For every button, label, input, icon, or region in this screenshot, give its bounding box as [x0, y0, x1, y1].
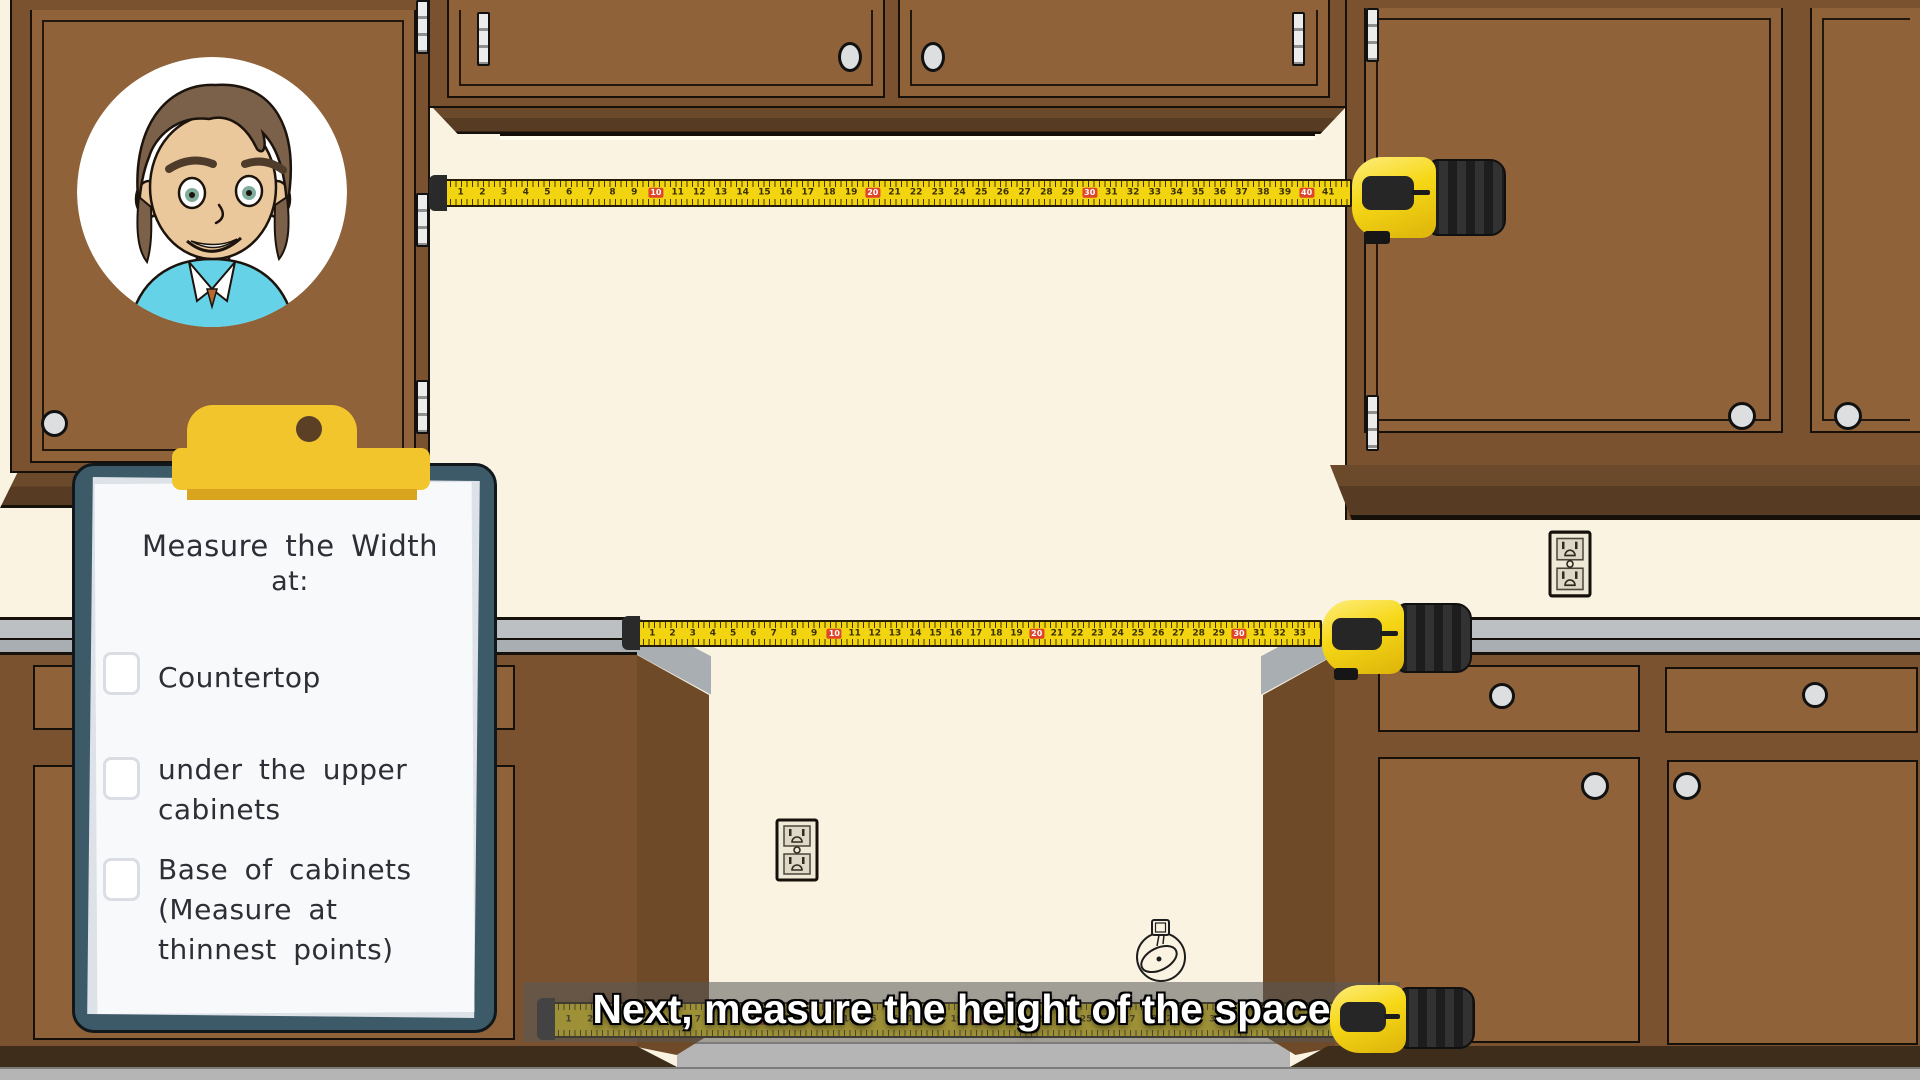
- tape-number: 32: [1273, 629, 1286, 638]
- tape-number: 35: [1192, 188, 1205, 197]
- tape-number: 14: [909, 629, 922, 638]
- tape-number: 22: [1071, 629, 1084, 638]
- tape-number: 29: [1213, 629, 1226, 638]
- under-cabinet-highlight: [500, 134, 1315, 140]
- hinge-icon: [416, 380, 429, 434]
- tape-number: 7: [588, 188, 594, 197]
- tape-number: 1: [649, 629, 655, 638]
- tape-number: 3: [690, 629, 696, 638]
- tape-number: 5: [730, 629, 736, 638]
- door-knob: [921, 42, 945, 72]
- checklist-item-under-upper-cabinets: under the upper cabinets: [158, 750, 468, 830]
- tape-number: 15: [758, 188, 771, 197]
- tape-number: 28: [1040, 188, 1053, 197]
- tape-number: 38: [1257, 188, 1270, 197]
- wall-outlet-icon: [1548, 530, 1592, 598]
- tape-measure-body-back: [1398, 987, 1475, 1049]
- door-knob: [41, 410, 68, 437]
- wall-outlet-icon: [775, 818, 819, 882]
- checkbox-countertop: [103, 652, 140, 695]
- tape-number: 13: [889, 629, 902, 638]
- tape-number: 31: [1253, 629, 1266, 638]
- tape-number: 25: [1132, 629, 1145, 638]
- tape-number: 9: [811, 629, 817, 638]
- tape-measure-body-back: [1396, 603, 1472, 673]
- tape-measure-axle: [1380, 631, 1398, 636]
- tape-number: 25: [975, 188, 988, 197]
- tape-number: 32: [1127, 188, 1140, 197]
- tape-number: 10: [827, 628, 842, 638]
- tape-number: 20: [1029, 628, 1044, 638]
- tape-number: 14: [736, 188, 749, 197]
- tape-number: 7: [771, 629, 777, 638]
- checklist-item-base-of-cabinets: Base of cabinets (Measure at thinnest po…: [158, 850, 468, 970]
- clipboard-clip-bar: [172, 448, 430, 490]
- tape-number: 21: [1051, 629, 1064, 638]
- tape-number: 1: [458, 188, 464, 197]
- tape-number: 34: [1170, 188, 1183, 197]
- checklist-item-countertop: Countertop: [158, 658, 468, 698]
- kitchen-illustration: 1234567891011121314151617181920212223242…: [0, 0, 1920, 1080]
- hinge-icon: [416, 193, 429, 247]
- tape-hook-icon: [429, 175, 447, 211]
- tape-number: 2: [479, 188, 485, 197]
- upper-width-tape: 1234567891011121314151617181920212223242…: [437, 179, 1352, 207]
- tape-measure-axle: [1412, 190, 1430, 195]
- tape-number: 12: [869, 629, 882, 638]
- tape-number: 16: [949, 629, 962, 638]
- tape-number: 20: [865, 188, 880, 198]
- door-knob: [1673, 772, 1701, 800]
- hinge-icon: [1292, 12, 1305, 66]
- floor: [0, 1067, 1920, 1080]
- door-panel: [459, 10, 873, 86]
- tape-measure-doodle-icon: [1128, 916, 1194, 984]
- tape-number: 26: [997, 188, 1010, 197]
- drawer-knob: [1802, 682, 1828, 708]
- tape-number: 19: [845, 188, 858, 197]
- tape-number: 6: [750, 629, 756, 638]
- lower-right-door-2: [1667, 760, 1918, 1045]
- tape-number: 22: [910, 188, 923, 197]
- tape-number: 8: [609, 188, 615, 197]
- door-knob: [838, 42, 862, 72]
- checkbox-base-of-cabinets: [103, 858, 140, 901]
- tape-number: 23: [932, 188, 945, 197]
- tape-number: 40: [1299, 188, 1314, 198]
- tape-number: 30: [1082, 188, 1097, 198]
- tape-number: 41: [1322, 188, 1335, 197]
- door-knob: [1581, 772, 1609, 800]
- upper-center-door-2: [898, 0, 1330, 98]
- checklist-title-suffix: at:: [110, 566, 470, 597]
- tape-number: 6: [566, 188, 572, 197]
- tape-number: 2: [669, 629, 675, 638]
- tape-number: 10: [648, 188, 663, 198]
- lower-right-drawer-2: [1665, 667, 1918, 733]
- hinge-icon: [416, 0, 429, 54]
- tape-number: 27: [1172, 629, 1185, 638]
- tape-number: 18: [823, 188, 836, 197]
- tape-number: 12: [693, 188, 706, 197]
- subtitle-text: Next, measure the height of the space: [523, 986, 1400, 1033]
- tape-number: 16: [780, 188, 793, 197]
- tape-measure-tab: [1334, 668, 1358, 680]
- countertop-width-tape: 1234567891011121314151617181920212223242…: [630, 620, 1322, 647]
- subtitle-bar: Next, measure the height of the space: [523, 982, 1400, 1042]
- checkbox-under-upper-cabinets: [103, 757, 140, 800]
- tape-number: 33: [1293, 629, 1306, 638]
- tape-number: 29: [1062, 188, 1075, 197]
- hinge-icon: [1366, 395, 1379, 451]
- tape-measure-tab: [1364, 231, 1390, 244]
- upper-center-door-1: [447, 0, 885, 98]
- drawer-knob: [1489, 683, 1515, 709]
- clipboard-clip-hole: [296, 416, 322, 442]
- tape-number: 15: [929, 629, 942, 638]
- upper-right-door-2: [1810, 8, 1920, 433]
- tape-number: 39: [1279, 188, 1292, 197]
- door-knob: [1834, 402, 1862, 430]
- avatar-presenter-icon: [77, 57, 347, 327]
- upper-right-trim: [1330, 465, 1920, 520]
- clipboard-clip-shadow: [187, 489, 417, 500]
- tape-measure-grip: [1332, 618, 1382, 650]
- tape-number: 31: [1105, 188, 1118, 197]
- checklist-title: Measure the Width: [110, 528, 470, 564]
- tape-number: 3: [501, 188, 507, 197]
- tape-number: 8: [791, 629, 797, 638]
- tape-number: 11: [848, 629, 861, 638]
- tape-number: 27: [1018, 188, 1031, 197]
- tape-number: 28: [1192, 629, 1205, 638]
- tape-number: 4: [710, 629, 716, 638]
- door-panel: [910, 10, 1318, 86]
- tape-number: 36: [1214, 188, 1227, 197]
- toe-kick-left: [0, 1046, 677, 1067]
- tape-number: 5: [544, 188, 550, 197]
- tape-number: 33: [1149, 188, 1162, 197]
- tape-hook-icon: [622, 616, 640, 650]
- tape-measure-grip: [1340, 1002, 1386, 1032]
- door-knob: [1728, 402, 1756, 430]
- tape-number: 17: [801, 188, 814, 197]
- tape-number: 21: [888, 188, 901, 197]
- tape-measure-body-back: [1428, 159, 1506, 236]
- tape-number: 24: [1111, 629, 1124, 638]
- tape-number: 18: [990, 629, 1003, 638]
- tape-number: 26: [1152, 629, 1165, 638]
- tape-measure-axle: [1384, 1014, 1400, 1019]
- tape-number: 4: [523, 188, 529, 197]
- tape-number: 24: [953, 188, 966, 197]
- tape-number: 13: [715, 188, 728, 197]
- tape-measure-grip: [1362, 176, 1414, 210]
- door-panel: [1822, 18, 1910, 421]
- hinge-icon: [477, 12, 490, 66]
- tape-number: 19: [1010, 629, 1023, 638]
- tape-number: 37: [1235, 188, 1248, 197]
- tape-number: 9: [631, 188, 637, 197]
- tape-number: 30: [1231, 628, 1246, 638]
- tape-number: 23: [1091, 629, 1104, 638]
- tape-number: 17: [970, 629, 983, 638]
- hinge-icon: [1366, 8, 1379, 62]
- tape-number: 11: [671, 188, 684, 197]
- upper-center-trim: [433, 108, 1345, 134]
